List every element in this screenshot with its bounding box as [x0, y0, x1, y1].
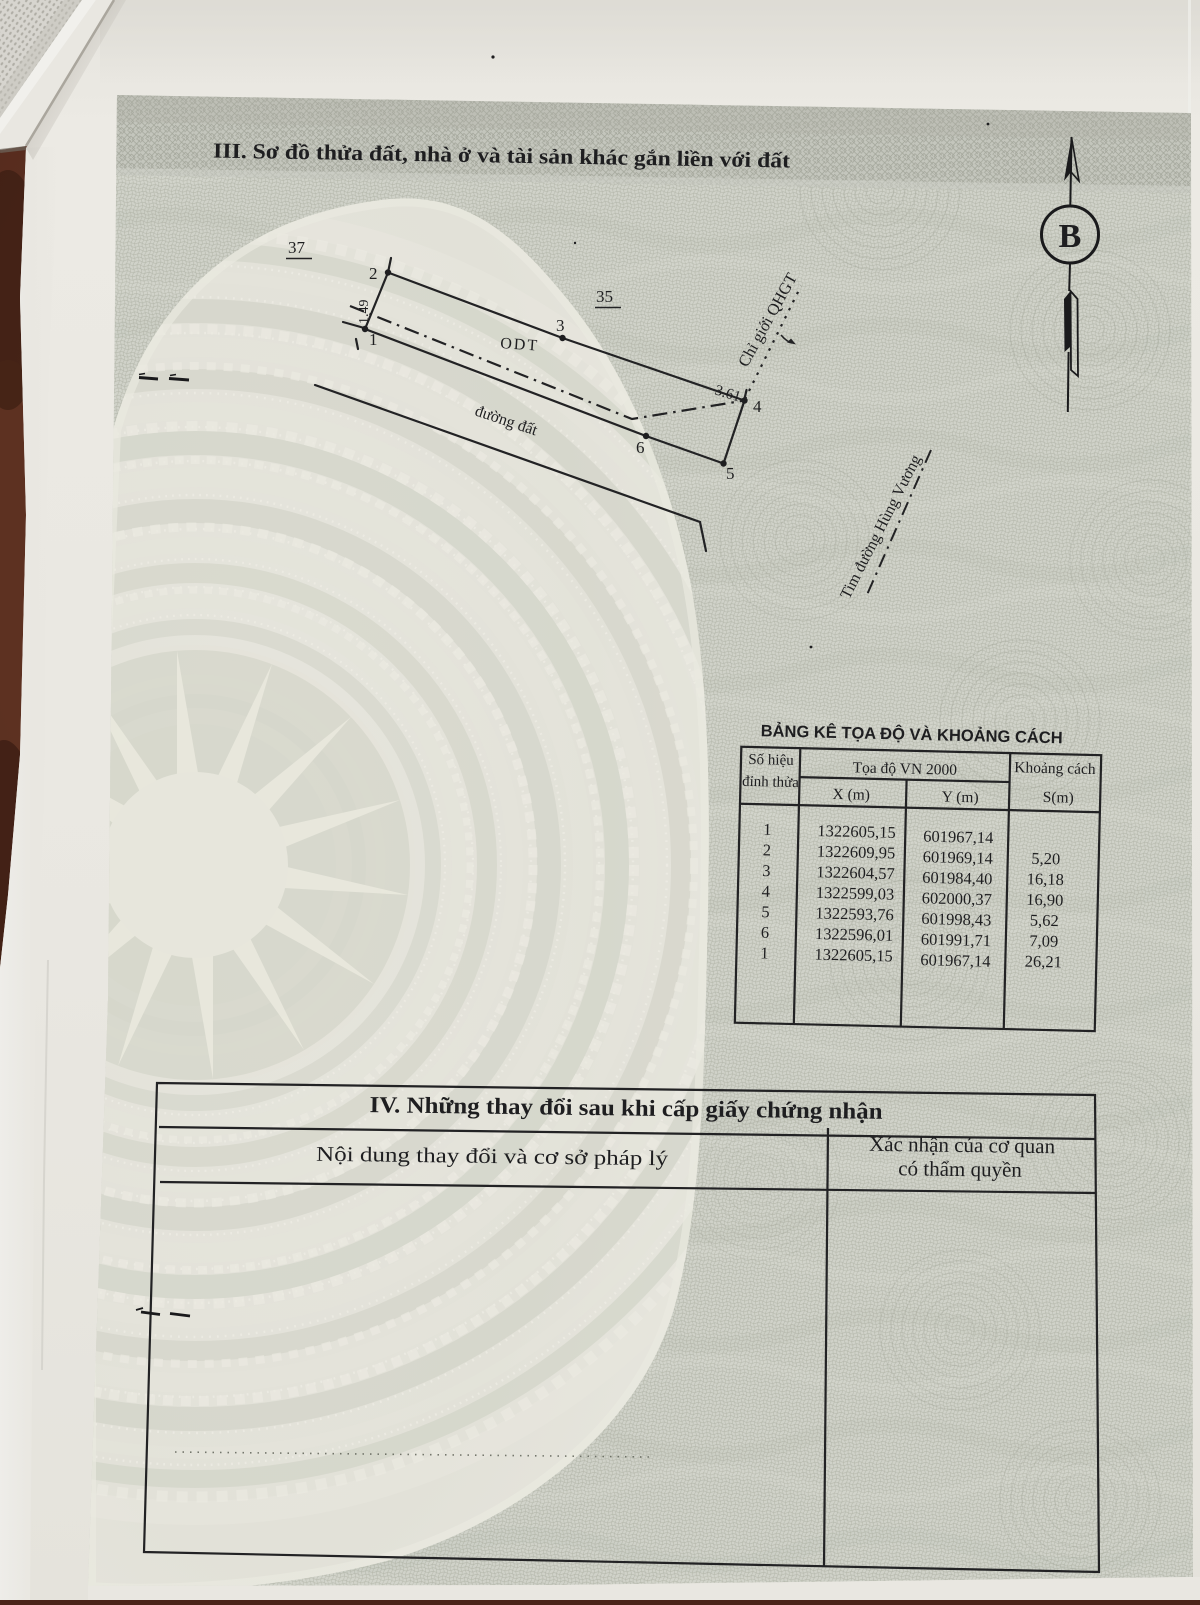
svg-text:1322596,01: 1322596,01	[815, 924, 894, 945]
svg-text:X (m): X (m)	[832, 786, 870, 804]
svg-text:5,62: 5,62	[1030, 910, 1059, 930]
svg-text:2: 2	[763, 840, 772, 859]
svg-text:1322593,76: 1322593,76	[815, 903, 894, 924]
svg-text:3: 3	[762, 861, 771, 880]
svg-text:1322605,15: 1322605,15	[817, 821, 896, 842]
svg-text:601984,40: 601984,40	[922, 868, 993, 889]
svg-text:Xác nhận của cơ quan: Xác nhận của cơ quan	[869, 1132, 1056, 1158]
svg-text:5: 5	[726, 464, 735, 483]
svg-text:7,09: 7,09	[1029, 931, 1058, 951]
svg-text:1: 1	[760, 943, 769, 962]
svg-text:1322609,95: 1322609,95	[817, 842, 896, 863]
svg-text:601998,43: 601998,43	[921, 909, 992, 930]
svg-text:1.49: 1.49	[357, 300, 372, 325]
svg-text:có thẩm quyền: có thẩm quyền	[898, 1156, 1022, 1182]
svg-text:5: 5	[761, 902, 770, 921]
svg-text:16,90: 16,90	[1026, 890, 1064, 910]
svg-text:6: 6	[636, 438, 645, 457]
svg-text:Y (m): Y (m)	[942, 788, 979, 806]
svg-text:4: 4	[753, 397, 762, 416]
svg-text:1322605,15: 1322605,15	[814, 945, 893, 966]
svg-text:Số hiệu: Số hiệu	[748, 752, 794, 769]
svg-text:Tọa độ VN 2000: Tọa độ VN 2000	[852, 759, 957, 778]
svg-text:601967,14: 601967,14	[920, 950, 991, 971]
svg-text:1: 1	[763, 820, 772, 839]
svg-text:601969,14: 601969,14	[923, 847, 994, 868]
svg-text:601967,14: 601967,14	[923, 827, 994, 848]
svg-text:3: 3	[556, 316, 565, 335]
svg-text:Nội dung thay đổi và cơ sở phá: Nội dung thay đổi và cơ sở pháp lý	[316, 1142, 669, 1171]
svg-text:602000,37: 602000,37	[922, 888, 993, 909]
svg-text:26,21: 26,21	[1025, 952, 1063, 972]
svg-text:601991,71: 601991,71	[921, 930, 992, 951]
svg-text:16,18: 16,18	[1027, 869, 1065, 889]
svg-text:2: 2	[369, 264, 378, 283]
svg-text:S(m): S(m)	[1043, 789, 1074, 807]
svg-text:4: 4	[762, 882, 771, 901]
svg-text:35: 35	[596, 287, 613, 306]
svg-text:1322604,57: 1322604,57	[816, 862, 895, 883]
svg-text:1322599,03: 1322599,03	[816, 883, 895, 904]
svg-text:B: B	[1059, 218, 1082, 255]
svg-text:đỉnh thửa: đỉnh thửa	[742, 774, 800, 791]
svg-text:ODT: ODT	[500, 335, 540, 355]
svg-text:6: 6	[761, 923, 770, 942]
svg-text:Khoảng cách: Khoảng cách	[1014, 759, 1096, 778]
svg-text:1: 1	[369, 330, 378, 349]
svg-text:5,20: 5,20	[1031, 849, 1060, 869]
svg-text:37: 37	[288, 238, 306, 257]
